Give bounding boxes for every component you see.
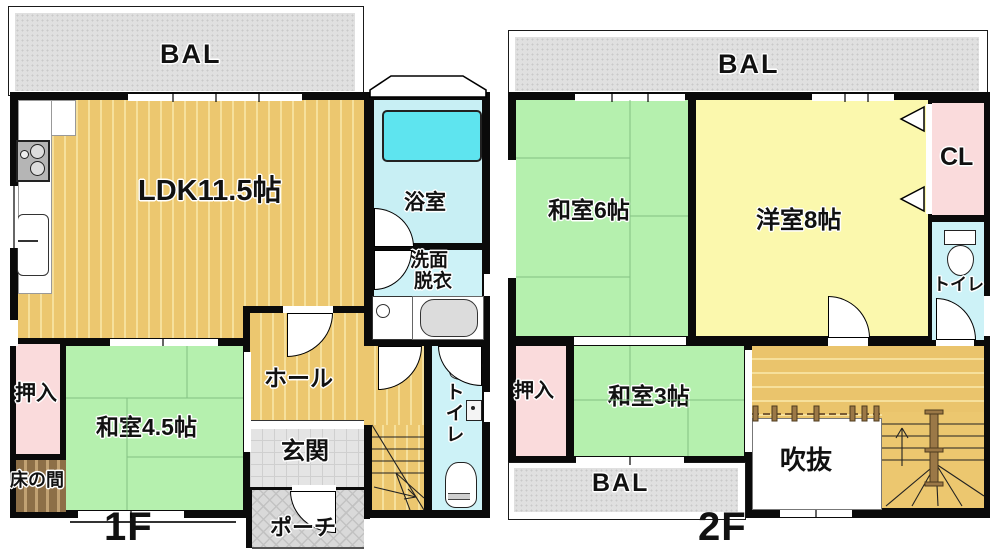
window-bottom-void (780, 510, 852, 517)
washbasin-icon (420, 299, 478, 337)
room-cl-label: CL (940, 144, 973, 171)
window-tatami6-left (508, 160, 516, 278)
engawa-step-line (70, 521, 236, 523)
window-washroom-right (484, 274, 490, 296)
room-washroom-label2: 脱衣 (414, 272, 452, 293)
ldk-hall-door-gap (283, 306, 333, 313)
room-hall-label: ホール (264, 366, 333, 391)
room-tatami-45-label: 和室4.5帖 (96, 415, 197, 440)
toilet-icon-1f (445, 462, 477, 508)
room-tatami-6-label: 和室6帖 (548, 198, 630, 223)
window-kitchen-left2 (10, 320, 18, 346)
room-ldk-label: LDK11.5帖 (138, 176, 281, 207)
kitchen-sink-icon (17, 214, 49, 276)
room-western-8-label: 洋室8帖 (756, 208, 841, 234)
washing-machine-icon (372, 296, 414, 340)
stove-icon (16, 140, 50, 182)
room-ldk-lower (18, 306, 243, 338)
floor-plan: BAL LDK11.5帖 浴室 洗面 脱衣 トイレ ホール 玄関 (0, 0, 1000, 552)
toilet-icon-2f-tank (944, 230, 976, 245)
fusuma-tatami3-hall (745, 350, 752, 452)
floor2-label: 2F (698, 506, 747, 549)
window-tatami3-bal (576, 457, 684, 465)
fusuma-ldk-tatami (110, 339, 218, 346)
stairs-2f (882, 412, 984, 508)
room-entrance-label: 玄関 (281, 439, 329, 465)
hall-2f (752, 346, 984, 418)
balcony-2f-top-label: BAL (718, 50, 780, 79)
window-western-top (812, 94, 894, 101)
room-tatami-3-label: 和室3帖 (608, 384, 690, 409)
stairs-1f (372, 425, 424, 510)
window-tatami6-top (575, 94, 685, 101)
room-closet-1f-label: 押入 (15, 383, 57, 406)
room-bath-label: 浴室 (404, 192, 446, 215)
room-tokonoma-label: 床の間 (10, 471, 64, 490)
window-toilet-right (484, 392, 490, 422)
fusuma-tatami6-tatami3 (574, 337, 686, 345)
window-kitchen-left (10, 186, 18, 248)
room-toilet-2f-label: トイレ (933, 276, 984, 294)
toilet-paper-holder-icon (466, 400, 482, 421)
floor1-label: 1F (104, 506, 153, 549)
porch-wall-right (364, 487, 370, 519)
void-label: 吹抜 (780, 446, 832, 474)
balcony-2f-bottom-label: BAL (592, 470, 649, 497)
room-oshiire-2f-label: 押入 (514, 381, 554, 403)
bathtub-icon (382, 110, 482, 162)
room-washroom-label1: 洗面 (410, 251, 448, 272)
fusuma-hall-tatami (244, 352, 251, 452)
window-toilet-2f-right (984, 296, 990, 336)
window-ldk-top (128, 94, 302, 101)
room-porch-label: ポーチ (270, 516, 336, 540)
balcony-1f-label: BAL (160, 40, 222, 69)
room-toilet-1f-label: トイレ (442, 382, 463, 445)
